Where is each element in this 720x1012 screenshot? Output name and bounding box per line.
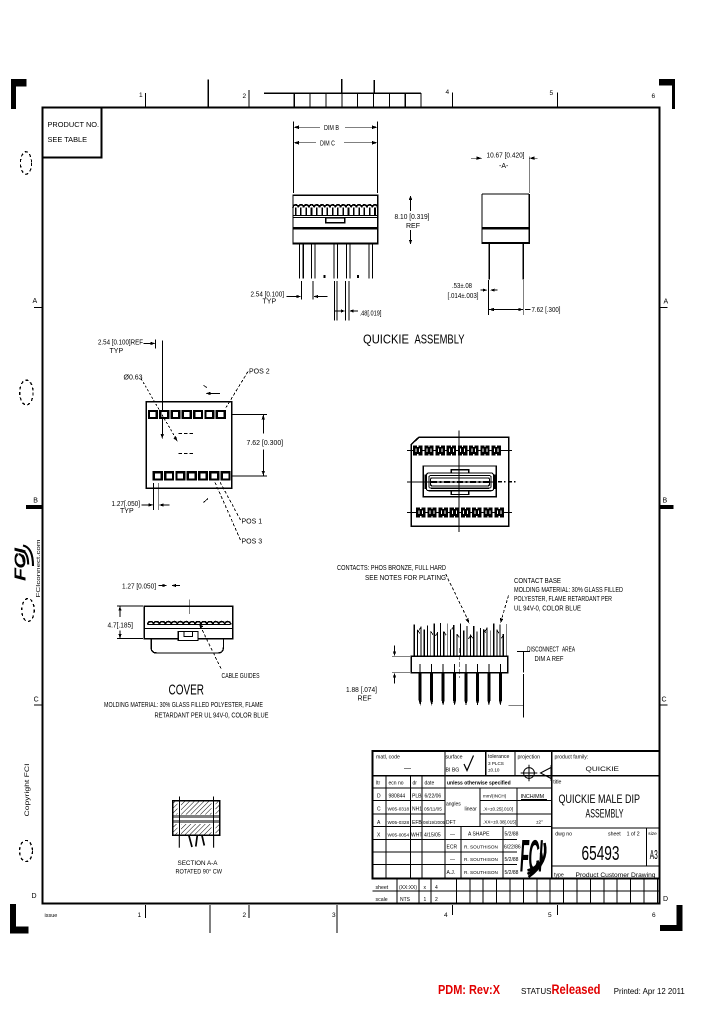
svg-text:±0.10: ±0.10 bbox=[488, 768, 500, 773]
svg-text:dwg no: dwg no bbox=[555, 831, 572, 837]
svg-text:W05-0054: W05-0054 bbox=[388, 833, 410, 838]
svg-text:1: 1 bbox=[424, 897, 427, 903]
svg-text:RETARDANT PER UL 94V-0, COLOR: RETARDANT PER UL 94V-0, COLOR BLUE bbox=[155, 713, 269, 720]
svg-text:ASSEMBLY: ASSEMBLY bbox=[586, 809, 624, 821]
svg-text:dr: dr bbox=[413, 781, 418, 787]
svg-text:CONTACTS: PHOS BRONZE, FULL HA: CONTACTS: PHOS BRONZE, FULL HARD bbox=[337, 565, 446, 572]
svg-text:6: 6 bbox=[652, 93, 656, 100]
svg-text:D: D bbox=[377, 793, 381, 799]
svg-text:Printed: Apr 12 2011: Printed: Apr 12 2011 bbox=[614, 987, 686, 996]
svg-text:COVER: COVER bbox=[169, 681, 205, 698]
svg-text:DISCONNECT: DISCONNECT bbox=[527, 646, 559, 653]
svg-text:7.62 [0.300]: 7.62 [0.300] bbox=[247, 440, 284, 447]
svg-text:W05-0328: W05-0328 bbox=[388, 820, 410, 825]
svg-text:.X=±0.25[.010]: .X=±0.25[.010] bbox=[483, 807, 513, 812]
svg-text:x: x bbox=[424, 885, 427, 891]
svg-text:-A-: -A- bbox=[499, 163, 509, 170]
svg-text:QUICKIE MALE DIP: QUICKIE MALE DIP bbox=[559, 794, 641, 806]
svg-text:R. SOUTHISON: R. SOUTHISON bbox=[464, 870, 498, 875]
svg-text:matl, code: matl, code bbox=[376, 755, 400, 761]
svg-text:AREA: AREA bbox=[562, 646, 575, 653]
svg-text:type: type bbox=[554, 872, 564, 878]
svg-text:D: D bbox=[32, 893, 37, 900]
svg-text:DIM C: DIM C bbox=[320, 141, 335, 148]
svg-text:B: B bbox=[663, 498, 668, 505]
svg-text:±2°: ±2° bbox=[536, 819, 543, 824]
svg-text:4: 4 bbox=[435, 885, 438, 891]
svg-text:2: 2 bbox=[243, 93, 247, 100]
svg-text:6: 6 bbox=[652, 912, 656, 919]
svg-text:PDM: Rev:X: PDM: Rev:X bbox=[438, 982, 500, 997]
svg-text:3 PLCS: 3 PLCS bbox=[488, 761, 504, 766]
svg-text:7.62 [.300]: 7.62 [.300] bbox=[532, 307, 561, 314]
svg-text:65493: 65493 bbox=[582, 843, 620, 865]
svg-text:TYP: TYP bbox=[263, 299, 277, 306]
svg-text:angles: angles bbox=[446, 802, 461, 808]
svg-text:1: 1 bbox=[139, 92, 143, 99]
svg-text:size: size bbox=[648, 831, 657, 837]
svg-text:.48[.019]: .48[.019] bbox=[360, 310, 382, 317]
svg-text:4/15/05: 4/15/05 bbox=[424, 833, 441, 839]
svg-text:1.27[.050]: 1.27[.050] bbox=[112, 501, 141, 508]
svg-text:surface: surface bbox=[446, 755, 463, 761]
svg-text:Product Customer Drawing: Product Customer Drawing bbox=[576, 872, 656, 879]
svg-text:FCIconnect.com: FCIconnect.com bbox=[36, 539, 42, 597]
svg-text:A3: A3 bbox=[650, 847, 658, 862]
svg-text:POLYESTER, FLAME RETARDANT PER: POLYESTER, FLAME RETARDANT PER bbox=[514, 596, 612, 603]
svg-text:sheet: sheet bbox=[608, 831, 621, 837]
svg-text:4.7[.185]: 4.7[.185] bbox=[108, 622, 134, 629]
svg-text:TYP: TYP bbox=[110, 348, 124, 355]
svg-text:1 of 2: 1 of 2 bbox=[627, 831, 640, 837]
svg-text:ECR: ECR bbox=[447, 844, 458, 850]
svg-text:Copyright FCI: Copyright FCI bbox=[24, 763, 31, 816]
svg-text:tolerance: tolerance bbox=[488, 754, 509, 760]
svg-text:(XX:XX): (XX:XX) bbox=[399, 885, 417, 891]
svg-text:—: — bbox=[450, 832, 455, 838]
svg-text:scale: scale bbox=[376, 897, 388, 903]
svg-text:CABLE GUIDES: CABLE GUIDES bbox=[222, 673, 260, 680]
svg-text:QUICKIE: QUICKIE bbox=[363, 333, 409, 347]
svg-text:5: 5 bbox=[550, 90, 554, 97]
svg-text:SEE TABLE: SEE TABLE bbox=[48, 135, 88, 144]
svg-text:projection: projection bbox=[518, 755, 541, 761]
svg-text:R. SOUTHISON: R. SOUTHISON bbox=[464, 857, 498, 862]
svg-text:INCH/MM: INCH/MM bbox=[521, 794, 545, 800]
svg-text:issue: issue bbox=[45, 913, 58, 919]
svg-text:date: date bbox=[425, 781, 435, 787]
svg-text:5/2/88: 5/2/88 bbox=[505, 832, 519, 838]
svg-text:product family:: product family: bbox=[555, 755, 589, 761]
svg-text:A.J.: A.J. bbox=[447, 870, 456, 876]
svg-text:REF: REF bbox=[406, 223, 420, 230]
svg-text:Released: Released bbox=[552, 982, 601, 997]
svg-text:—: — bbox=[450, 857, 455, 863]
svg-text:A: A bbox=[33, 298, 38, 305]
svg-text:MOLDING MATERIAL: 30% GLASS FI: MOLDING MATERIAL: 30% GLASS FILLED bbox=[514, 587, 623, 594]
svg-text:X: X bbox=[377, 833, 381, 839]
svg-text:QUICKIE: QUICKIE bbox=[586, 766, 620, 773]
svg-text:2.54 [0.100]: 2.54 [0.100] bbox=[251, 292, 285, 299]
svg-text:980844: 980844 bbox=[389, 793, 406, 799]
svg-text:.XX=±0.38[.015]: .XX=±0.38[.015] bbox=[483, 819, 516, 824]
svg-text:ltr: ltr bbox=[376, 781, 381, 787]
svg-text:2.54 [0.100]REF: 2.54 [0.100]REF bbox=[98, 340, 143, 347]
svg-text:Ø0.63: Ø0.63 bbox=[124, 374, 143, 381]
svg-text:A SHAPE: A SHAPE bbox=[468, 832, 490, 838]
svg-text:PLB: PLB bbox=[412, 793, 422, 799]
svg-text:ecn no: ecn no bbox=[389, 781, 404, 787]
svg-text:2: 2 bbox=[435, 897, 438, 903]
svg-text:DIM A REF: DIM A REF bbox=[535, 656, 564, 663]
svg-text:PRODUCT NO.: PRODUCT NO. bbox=[48, 120, 100, 129]
svg-text:5/2/88: 5/2/88 bbox=[505, 870, 519, 876]
svg-text:[.014±.003]: [.014±.003] bbox=[448, 293, 479, 300]
svg-text:.53±.08: .53±.08 bbox=[452, 283, 472, 290]
svg-text:4: 4 bbox=[446, 89, 450, 96]
svg-text:ROTATED 90° CW: ROTATED 90° CW bbox=[176, 867, 223, 875]
svg-text:1.27 [0.050]: 1.27 [0.050] bbox=[122, 583, 156, 590]
svg-text:SECTION A-A: SECTION A-A bbox=[178, 860, 219, 867]
svg-text:6/22/86: 6/22/86 bbox=[504, 844, 521, 850]
svg-text:R. SOUTHISON: R. SOUTHISON bbox=[464, 844, 498, 849]
svg-text:CONTACT BASE: CONTACT BASE bbox=[514, 578, 561, 585]
svg-text:POS 1: POS 1 bbox=[242, 518, 263, 525]
svg-text:1: 1 bbox=[138, 912, 142, 919]
svg-text:sheet: sheet bbox=[376, 885, 389, 891]
svg-text:BI BG: BI BG bbox=[446, 768, 460, 774]
svg-text:title: title bbox=[553, 780, 561, 786]
svg-text:FCI: FCI bbox=[11, 547, 28, 581]
svg-text:C: C bbox=[377, 807, 381, 813]
svg-text:B: B bbox=[33, 498, 38, 505]
svg-text:POS 2: POS 2 bbox=[249, 368, 270, 375]
svg-text:3: 3 bbox=[332, 912, 336, 919]
svg-text:UL 94V-0, COLOR BLUE: UL 94V-0, COLOR BLUE bbox=[514, 605, 581, 612]
svg-text:10.67 [0.420]: 10.67 [0.420] bbox=[487, 152, 525, 159]
svg-text:MOLDING MATERIAL: 30% GLASS FI: MOLDING MATERIAL: 30% GLASS FILLED POLYE… bbox=[104, 702, 263, 709]
svg-text:WHT: WHT bbox=[411, 833, 422, 839]
svg-text:5/2/88: 5/2/88 bbox=[505, 857, 519, 863]
svg-text:5: 5 bbox=[548, 912, 552, 919]
svg-text:08/19/2005: 08/19/2005 bbox=[423, 820, 446, 825]
svg-text:05/11/05: 05/11/05 bbox=[424, 807, 442, 812]
svg-text:A: A bbox=[664, 299, 669, 306]
svg-text:8.10 [0.319]: 8.10 [0.319] bbox=[395, 214, 430, 221]
svg-text:TYP: TYP bbox=[120, 508, 134, 515]
svg-text:linear: linear bbox=[465, 807, 478, 813]
svg-text:POS 3: POS 3 bbox=[242, 538, 263, 545]
svg-text:ASSEMBLY: ASSEMBLY bbox=[415, 333, 465, 347]
svg-text:D: D bbox=[663, 896, 668, 903]
svg-text:4: 4 bbox=[444, 912, 448, 919]
svg-text:1.88 [.074]: 1.88 [.074] bbox=[346, 687, 377, 694]
svg-text:6/22/06: 6/22/06 bbox=[425, 793, 442, 799]
svg-text:unless otherwise specified: unless otherwise specified bbox=[447, 781, 511, 787]
svg-text:DIM B: DIM B bbox=[324, 125, 339, 132]
svg-text:C: C bbox=[34, 697, 39, 704]
svg-text:mm/(INCH): mm/(INCH) bbox=[483, 793, 507, 798]
svg-text:EFB: EFB bbox=[412, 820, 422, 826]
svg-text:A: A bbox=[377, 820, 381, 826]
svg-text:DFT: DFT bbox=[446, 820, 456, 826]
svg-text:NH1: NH1 bbox=[412, 807, 422, 813]
svg-text:STATUS: STATUS bbox=[521, 987, 552, 996]
svg-text:W05-0318: W05-0318 bbox=[388, 807, 410, 812]
svg-text:2: 2 bbox=[243, 912, 247, 919]
svg-text:—: — bbox=[404, 765, 411, 772]
svg-text:REF: REF bbox=[358, 696, 372, 703]
svg-text:NTS: NTS bbox=[400, 897, 411, 903]
svg-text:C: C bbox=[662, 697, 667, 704]
svg-text:SEE NOTES FOR PLATING: SEE NOTES FOR PLATING bbox=[365, 575, 446, 582]
